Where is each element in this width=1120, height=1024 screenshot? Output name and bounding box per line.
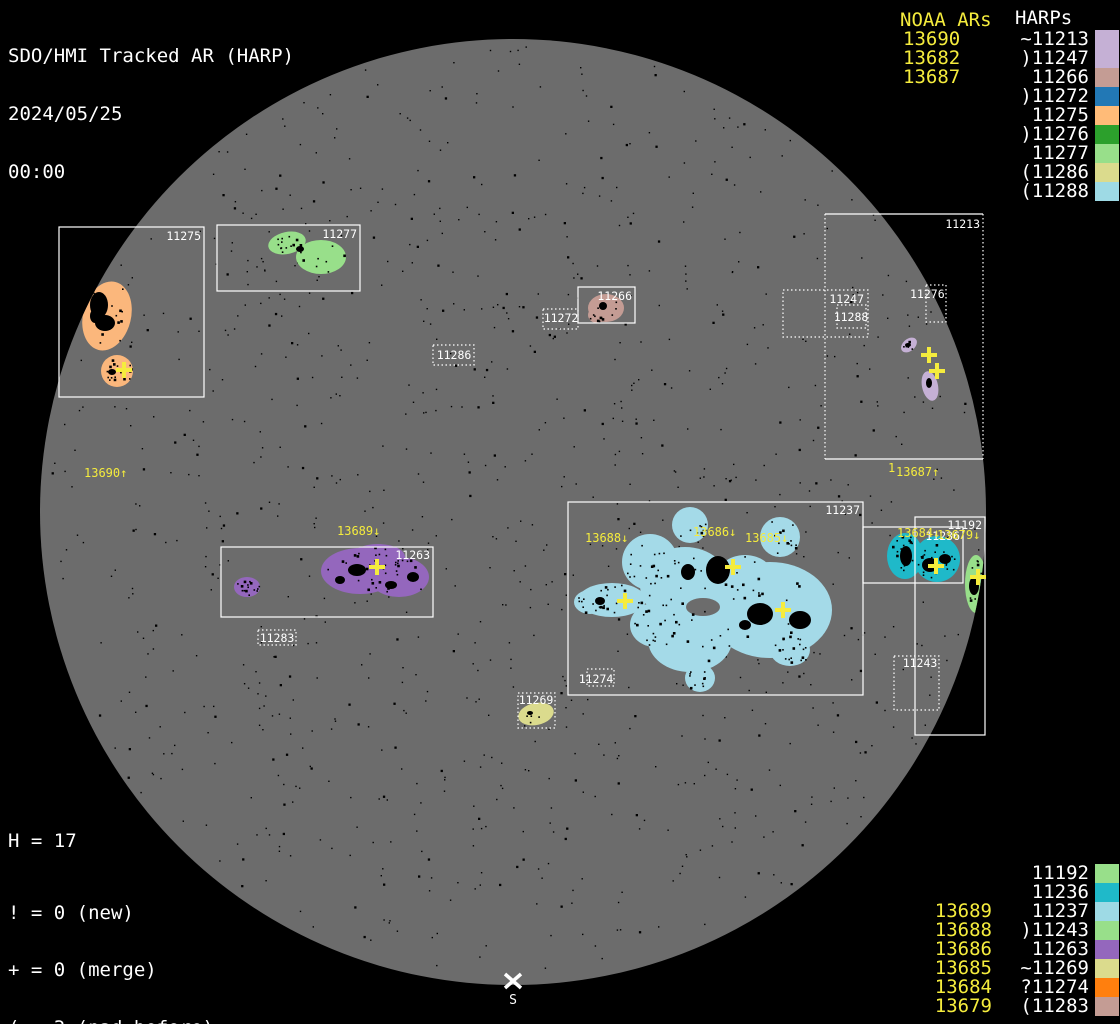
umbra-patch	[926, 378, 932, 388]
harp-color-swatch	[1095, 921, 1119, 940]
harp-box-label-11213: 11213	[945, 217, 980, 231]
noaa-shifted-label: 13686↓	[693, 525, 736, 539]
noaa-shifted-label: 13688↓	[585, 531, 628, 545]
umbra-patch	[706, 556, 730, 584]
active-region-blob	[296, 240, 346, 274]
noaa-shifted-label: 13690↑	[84, 466, 127, 480]
harp-box-label-11288: 11288	[834, 310, 869, 324]
harp-box-label-11247: 11247	[829, 292, 864, 306]
harp-box-label-11274: 11274	[579, 672, 614, 686]
harp-color-swatch	[1095, 30, 1119, 68]
status-line-merge: + = 0 (merge)	[8, 961, 225, 980]
umbra-patch	[595, 597, 605, 605]
umbra-patch	[108, 369, 116, 375]
noaa-ar-item: 13687	[903, 68, 960, 87]
harp-color-swatch	[1095, 940, 1119, 959]
harp-color-swatch	[1095, 182, 1119, 201]
umbra-patch	[789, 611, 811, 629]
noaa-shifted-label: 13679↓	[937, 528, 980, 542]
umbra-patch	[739, 620, 751, 630]
harp-box-label-11266: 11266	[597, 289, 632, 303]
noaa-shifted-label: 1	[888, 461, 895, 475]
active-region-blob	[234, 577, 260, 597]
harp-color-swatch	[1095, 68, 1119, 87]
harp-color-swatch	[1095, 978, 1119, 997]
noaa-shifted-label: 13684↓	[897, 526, 940, 540]
harp-tracking-figure: { "title": { "line1": "SDO/HMI Tracked A…	[0, 0, 1120, 1024]
harp-color-swatch	[1095, 125, 1119, 144]
harp-box-label-11277: 11277	[322, 227, 357, 241]
harp-box-label-11243: 11243	[903, 656, 938, 670]
noaa-shifted-label: 13685↓	[745, 531, 788, 545]
umbra-patch	[681, 564, 695, 580]
harp-box-label-11269: 11269	[519, 693, 554, 707]
noaa-ars-header: NOAA ARs	[900, 10, 992, 30]
south-label: S	[509, 993, 517, 1008]
time-label: 00:00	[8, 162, 294, 182]
active-region-blob	[685, 664, 715, 692]
footer-notes: HARPs: numbered boxes; active region col…	[8, 990, 410, 1024]
harp-item: (11283	[959, 997, 1089, 1016]
blob-hole	[686, 598, 720, 616]
umbra-patch	[335, 576, 345, 584]
harp-box-label-11286: 11286	[437, 348, 472, 362]
harp-box-label-11263: 11263	[395, 548, 430, 562]
harp-item: (11288	[959, 182, 1089, 201]
harp-box-label-11283: 11283	[260, 631, 295, 645]
harps-header: HARPs	[1015, 8, 1072, 28]
harp-color-swatch	[1095, 959, 1119, 978]
harp-box-label-11237: 11237	[825, 503, 860, 517]
harp-color-swatch	[1095, 144, 1119, 163]
noaa-shifted-label: 13687↑	[896, 465, 939, 479]
harp-color-swatch	[1095, 864, 1119, 883]
umbra-patch	[939, 554, 951, 564]
date-label: 2024/05/25	[8, 104, 294, 124]
status-line-new: ! = 0 (new)	[8, 904, 225, 923]
harp-color-swatch	[1095, 883, 1119, 902]
harp-color-swatch	[1095, 902, 1119, 921]
noaa-shifted-label: 13689↓	[337, 524, 380, 538]
harp-box-label-11272: 11272	[544, 311, 579, 325]
title-block: SDO/HMI Tracked AR (HARP) 2024/05/25 00:…	[8, 8, 294, 220]
umbra-patch	[385, 581, 397, 589]
harp-box-label-11276: 11276	[910, 287, 945, 301]
harp-box-label-11275: 11275	[166, 229, 201, 243]
page-title: SDO/HMI Tracked AR (HARP)	[8, 46, 294, 66]
harp-color-swatch	[1095, 87, 1119, 106]
harp-color-swatch	[1095, 997, 1119, 1016]
umbra-patch	[599, 302, 607, 310]
umbra-patch	[348, 564, 366, 576]
harp-color-swatch	[1095, 163, 1119, 182]
umbra-patch	[90, 309, 100, 323]
harp-color-swatch	[1095, 106, 1119, 125]
umbra-patch	[747, 603, 773, 625]
harp-count: H = 17	[8, 830, 77, 852]
